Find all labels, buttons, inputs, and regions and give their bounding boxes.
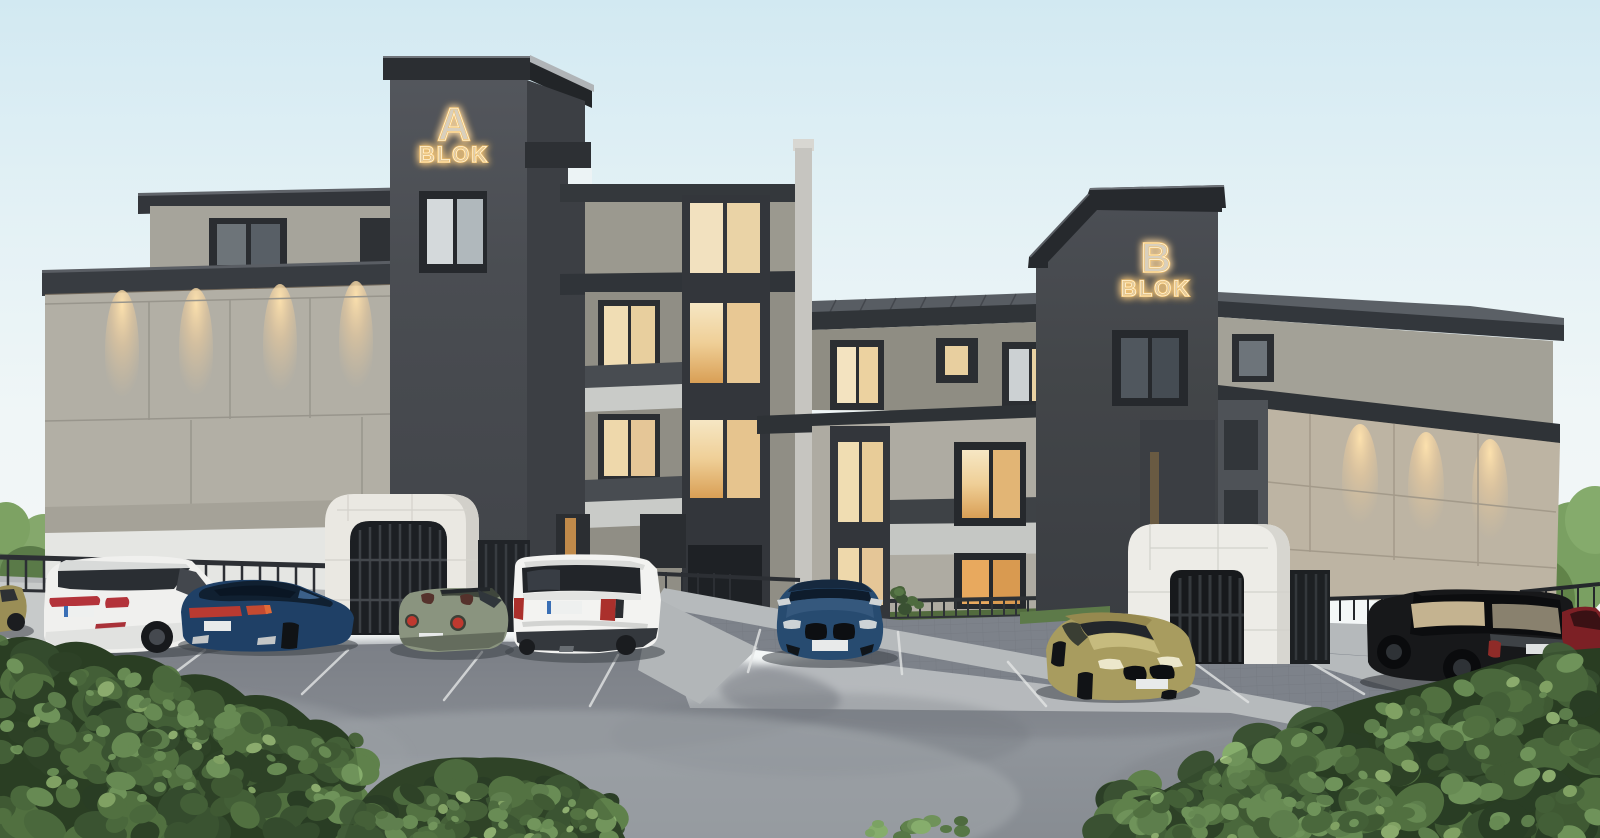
svg-text:BLOK: BLOK: [419, 142, 489, 167]
svg-text:BLOK: BLOK: [1121, 276, 1191, 301]
svg-text:B: B: [1141, 234, 1171, 281]
